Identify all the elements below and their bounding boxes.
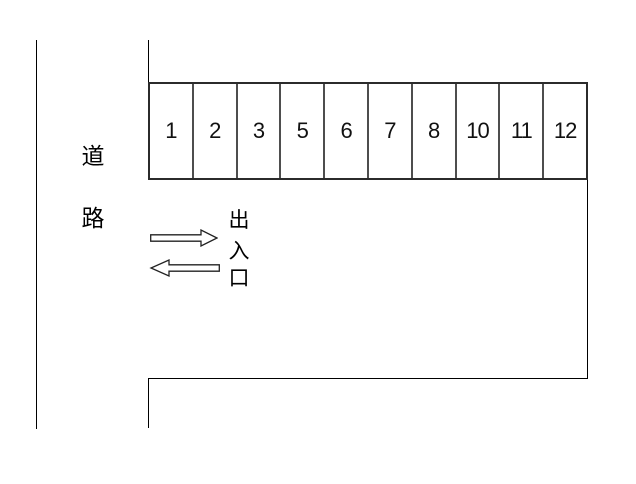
stall-number: 6 [340,118,351,144]
gate-label-char-1: 出 [227,210,251,231]
road-label-char-1: 道 [80,145,106,168]
entrance-arrow-icon [150,229,218,247]
parking-stall-6: 6 [325,84,369,178]
parking-stall-row: 1 2 3 5 6 7 8 10 11 12 [148,82,588,180]
parking-stall-12: 12 [544,84,586,178]
parking-stall-2: 2 [194,84,238,178]
parking-lot-diagram: 道 路 1 2 3 5 6 7 8 10 11 12 出 入 口 [0,0,636,484]
exit-arrow-icon [148,259,220,277]
stall-number: 2 [209,118,220,144]
parking-stall-7: 7 [369,84,413,178]
road-label-char-2: 路 [80,207,106,230]
stall-number: 11 [511,118,532,144]
gate-label-char-2: 入 [227,241,251,262]
parking-stall-11: 11 [500,84,544,178]
stall-number: 5 [297,118,308,144]
stall-number: 12 [554,118,576,144]
stall-number: 7 [384,118,395,144]
lot-wall-bottom [148,378,588,379]
stall-number: 1 [165,118,176,144]
parking-stall-10: 10 [457,84,501,178]
parking-stall-1: 1 [150,84,194,178]
gate-label-char-3: 口 [227,268,251,289]
parking-stall-5: 5 [281,84,325,178]
road-boundary-line [36,40,37,429]
lot-wall-right [587,179,588,379]
lot-wall-lower-left [148,378,149,428]
parking-stall-3: 3 [238,84,282,178]
stall-number: 8 [428,118,439,144]
stall-number: 10 [466,118,488,144]
lot-wall-upper-left [148,40,149,84]
parking-stall-8: 8 [413,84,457,178]
stall-number: 3 [253,118,264,144]
